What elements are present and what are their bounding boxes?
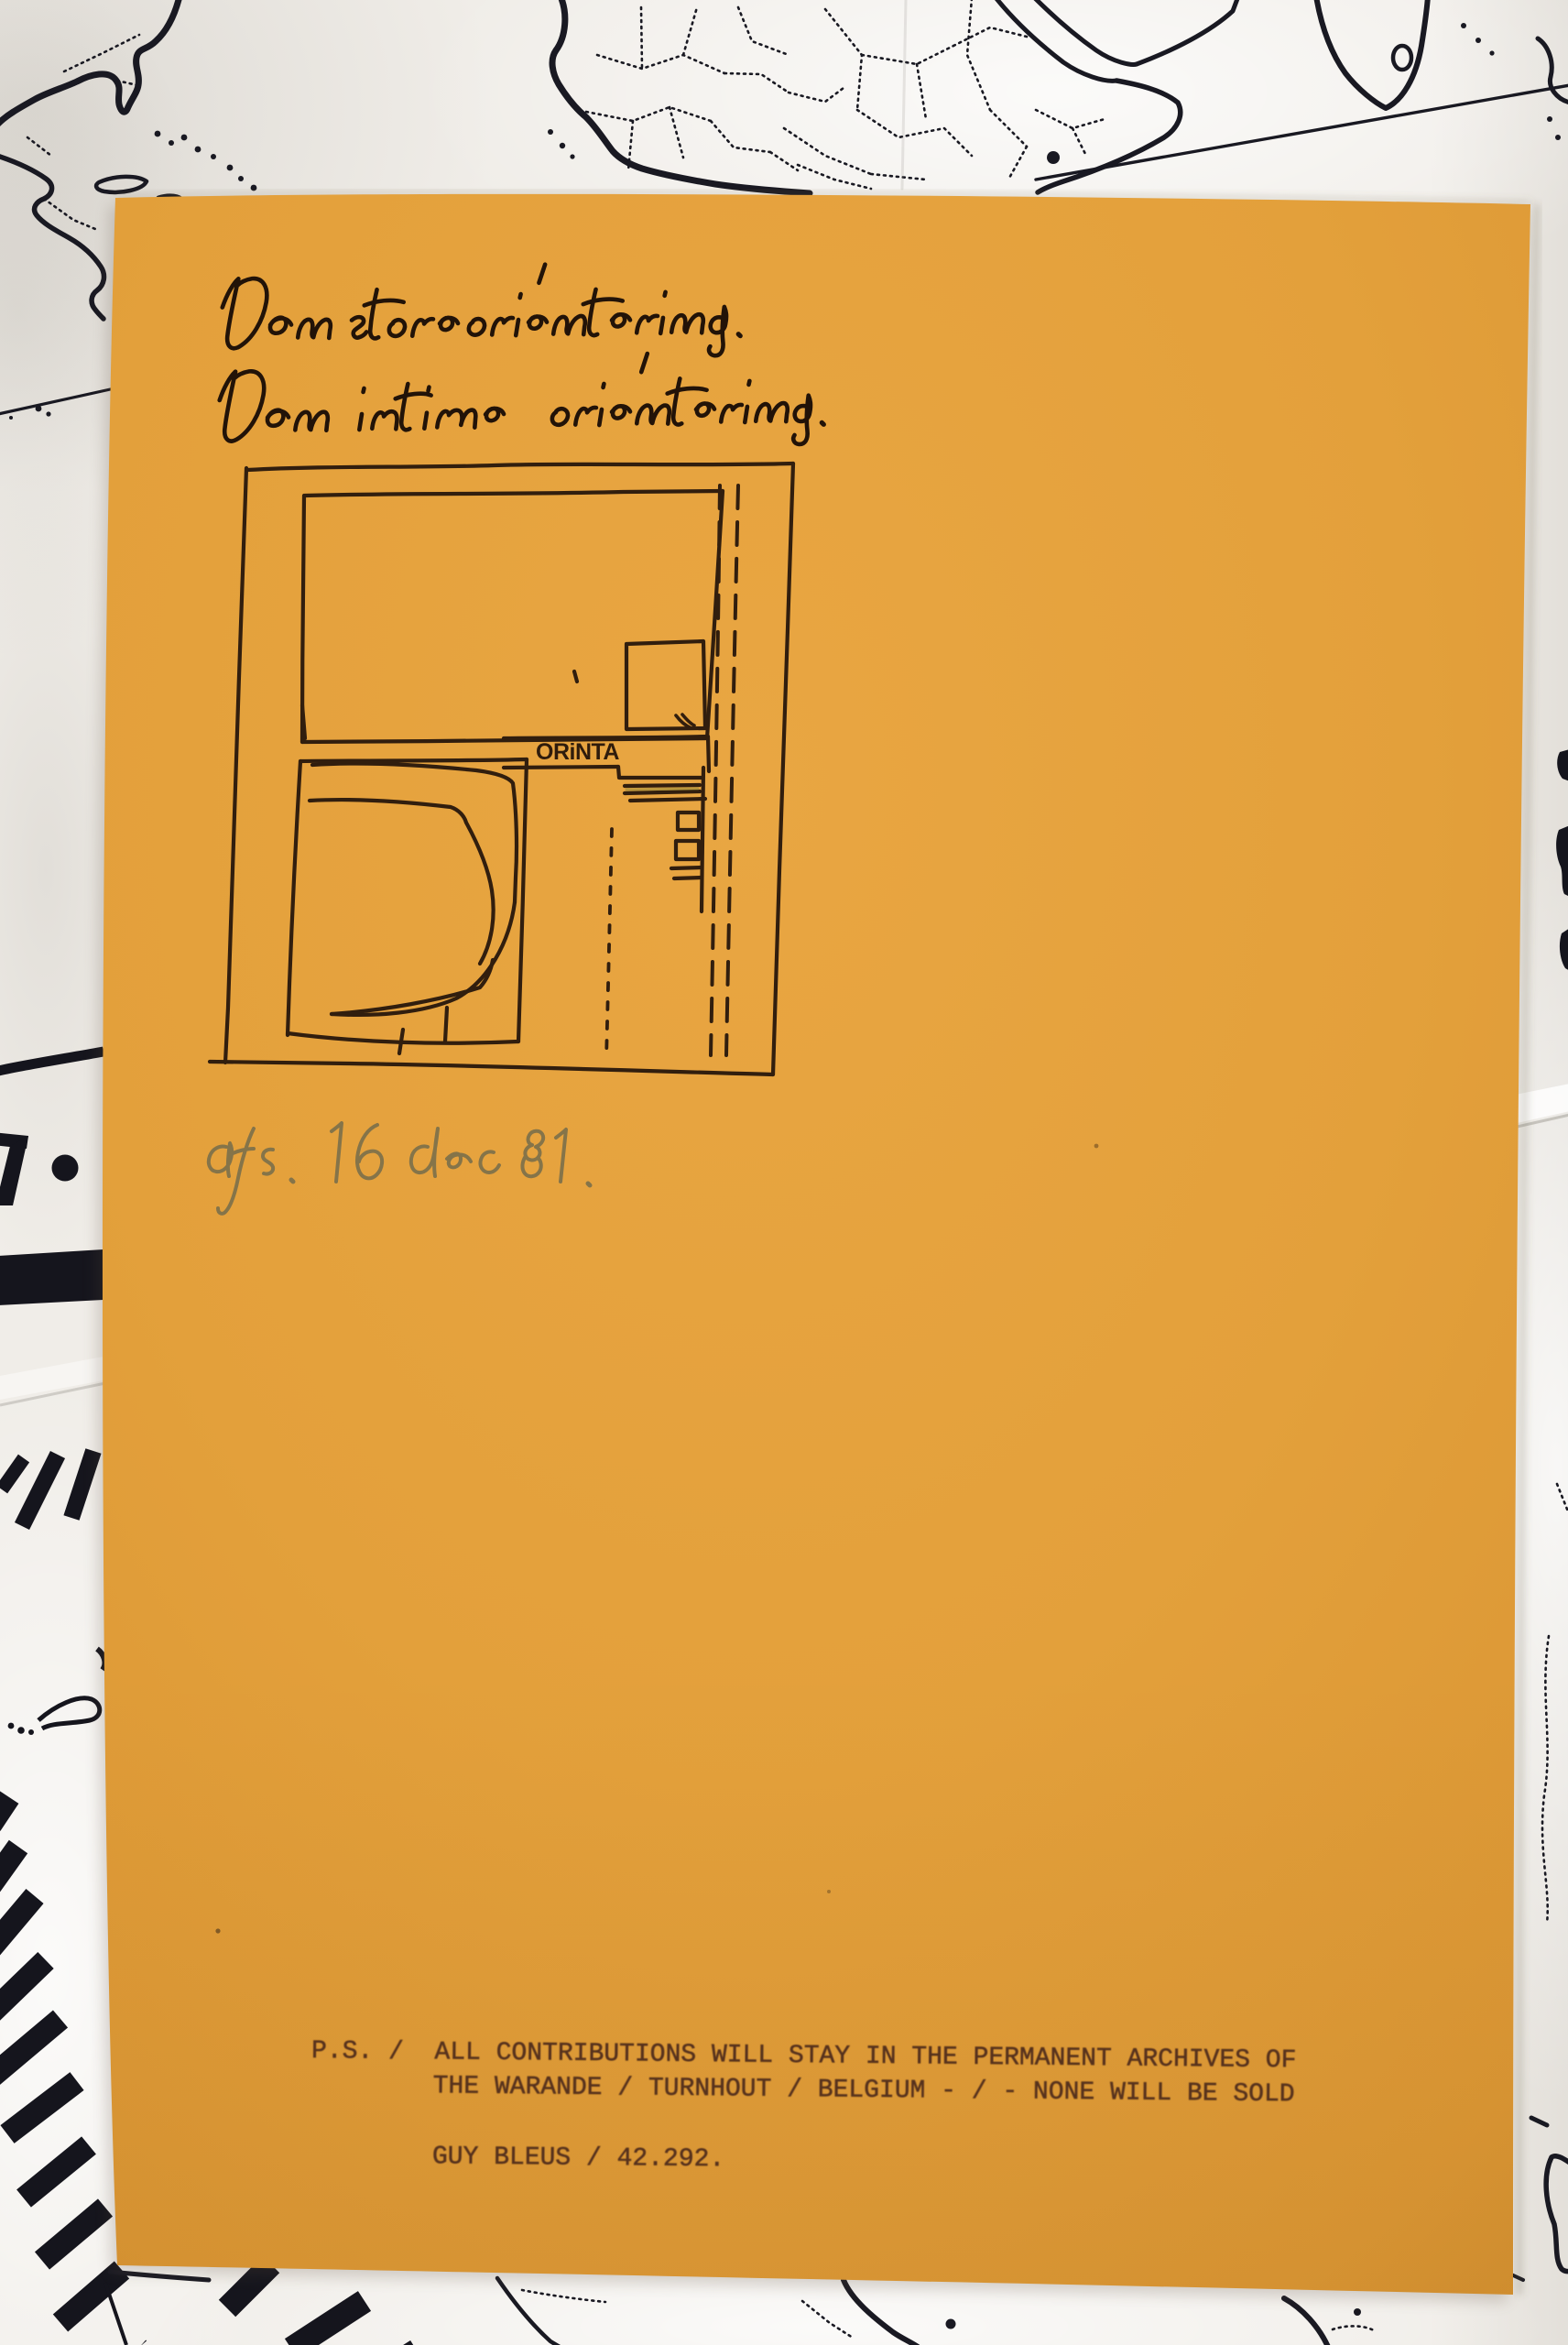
svg-text:ORiNTA: ORiNTA — [536, 739, 619, 765]
svg-text:GUY BLEUS / 42.292.: GUY BLEUS / 42.292. — [432, 2143, 725, 2174]
